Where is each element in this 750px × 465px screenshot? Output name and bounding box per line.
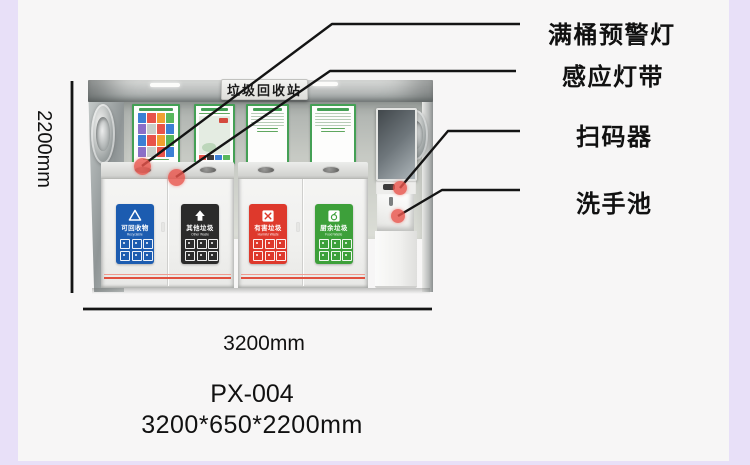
- sign-text: 垃圾回收站: [227, 80, 302, 99]
- wall-poster: [132, 104, 180, 164]
- accent-stripe: [241, 274, 365, 276]
- door-seam: [167, 179, 168, 286]
- label-sensor-light-strip: 感应灯带: [562, 57, 664, 92]
- bin-sticker-food-waste: 厨余垃圾 Food Waste: [315, 204, 353, 264]
- scanner-dot: [393, 181, 407, 195]
- bin-sticker-recyclable: 可回收物 Recyclable: [116, 204, 154, 264]
- label-sink: 洗手池: [576, 184, 653, 219]
- food-waste-icon: [326, 207, 342, 225]
- accent-stripe: [104, 274, 231, 276]
- light-strip-dot: [168, 169, 185, 186]
- product-size: 3200*650*2200mm: [122, 411, 382, 440]
- wall-poster: [246, 104, 289, 164]
- ceiling-light: [150, 83, 180, 87]
- height-dimension-label: 2200mm: [33, 107, 55, 191]
- kiosk-base-cabinet: [375, 231, 417, 288]
- accent-stripe: [104, 277, 231, 280]
- wall-poster: [310, 104, 356, 164]
- bin-sticker-other-waste: 其他垃圾 Other Waste: [181, 204, 219, 264]
- label-scanner: 扫码器: [576, 117, 653, 152]
- arrow-up-icon: [192, 207, 208, 225]
- bin-lid-handle: [200, 167, 216, 173]
- bin-lid-handle: [323, 167, 339, 173]
- accent-stripe: [241, 277, 365, 280]
- wall-poster: [194, 104, 235, 164]
- door-handle-indent: [296, 222, 300, 232]
- ceiling-light: [312, 82, 338, 86]
- warning-light-dot: [134, 158, 151, 175]
- harmful-cross-icon: [260, 207, 276, 225]
- door-handle-indent: [161, 222, 165, 232]
- floor-shadow: [92, 288, 430, 294]
- door-seam: [302, 179, 303, 286]
- left-wall-logo-emblem: [91, 104, 115, 164]
- bin-lid-handle: [258, 167, 274, 173]
- label-full-bin-warning-light: 满桶预警灯: [548, 15, 676, 50]
- sign-board: 垃圾回收站: [221, 79, 308, 100]
- sink-dot: [391, 209, 405, 223]
- screen-glass: [378, 110, 415, 179]
- recycle-triangle-icon: [127, 207, 143, 225]
- station-right-wall: [422, 83, 433, 292]
- width-dimension-label: 3200mm: [204, 332, 324, 356]
- kiosk-screen: [376, 108, 417, 181]
- faucet-icon: [389, 197, 393, 206]
- bin-sticker-harmful-waste: 有害垃圾 Harmful Waste: [249, 204, 287, 264]
- product-model: PX-004: [152, 380, 352, 409]
